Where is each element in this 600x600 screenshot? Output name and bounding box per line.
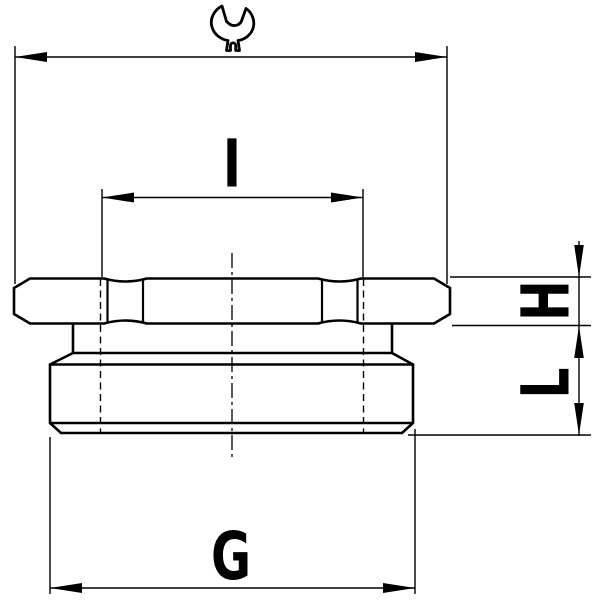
arrowhead-right <box>331 193 363 203</box>
dimension-h-and-l: H L <box>408 241 591 436</box>
dimension-label-h: H <box>507 280 584 321</box>
dimension-label-i: I <box>223 125 241 202</box>
arrowhead-right <box>415 52 447 62</box>
part-outline <box>14 253 450 458</box>
arrowhead-l-bottom <box>574 403 584 435</box>
arrowhead-left <box>15 52 47 62</box>
wrench-icon <box>211 6 253 51</box>
dimension-label-g: G <box>211 518 251 595</box>
arrowhead-h-top <box>574 245 584 277</box>
arrowhead-left <box>102 193 134 203</box>
arrowhead-left <box>50 583 82 593</box>
dimension-label-l: L <box>507 367 584 398</box>
dimension-thread-size: G <box>50 429 415 595</box>
technical-drawing: I H L G <box>0 0 600 600</box>
arrowhead-right <box>383 583 415 593</box>
arrowhead-h-bottom <box>574 326 584 358</box>
